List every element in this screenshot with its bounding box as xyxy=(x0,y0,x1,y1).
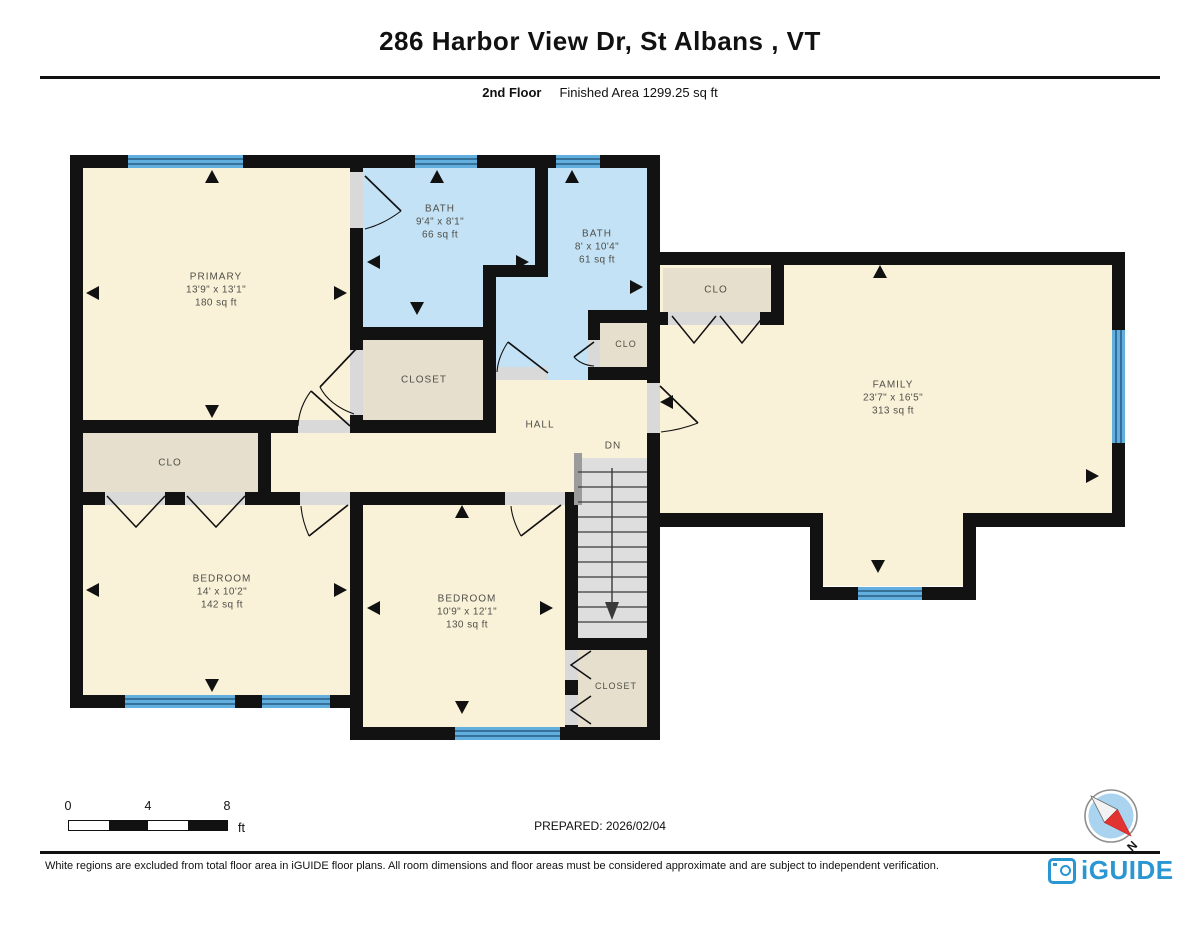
iguide-logo: iGUIDE xyxy=(1048,855,1174,886)
room-label-closet-bedroom2: CLOSET xyxy=(595,681,637,693)
room-label-bedroom-2: BEDROOM10'9" x 12'1"130 sq ft xyxy=(437,593,497,632)
stairs-down-label: DN xyxy=(605,440,621,453)
footer-divider xyxy=(40,851,1160,854)
room-label-hall: HALL xyxy=(525,419,554,432)
finished-area-label: Finished Area 1299.25 sq ft xyxy=(559,85,717,100)
room-label-bath-1: BATH9'4" x 8'1"66 sq ft xyxy=(416,203,464,242)
room-label-clo-family: CLO xyxy=(704,284,728,297)
scale-tick-4: 4 xyxy=(145,799,152,813)
room-label-bath-2: BATH8' x 10'4"61 sq ft xyxy=(575,228,619,267)
room-label-clo-left: CLO xyxy=(158,457,182,470)
iguide-logo-text: iGUIDE xyxy=(1081,855,1174,886)
scale-tick-8: 8 xyxy=(224,799,231,813)
floor-label: 2nd Floor xyxy=(482,85,541,100)
page-title: 286 Harbor View Dr, St Albans , VT xyxy=(0,26,1200,57)
room-label-bedroom-1: BEDROOM14' x 10'2"142 sq ft xyxy=(193,573,252,612)
room-label-closet-hall: CLOSET xyxy=(401,374,447,387)
scale-tick-0: 0 xyxy=(65,799,72,813)
disclaimer-text: White regions are excluded from total fl… xyxy=(45,860,1025,872)
floor-plan-page: 286 Harbor View Dr, St Albans , VT 2nd F… xyxy=(0,0,1200,927)
prepared-date: PREPARED: 2026/02/04 xyxy=(0,819,1200,833)
floor-subheader: 2nd Floor Finished Area 1299.25 sq ft xyxy=(0,85,1200,100)
room-label-primary: PRIMARY13'9" x 13'1"180 sq ft xyxy=(186,271,246,310)
iguide-camera-icon xyxy=(1048,858,1076,884)
room-label-family: FAMILY23'7" x 16'5"313 sq ft xyxy=(863,379,923,418)
room-label-clo-small: CLO xyxy=(615,339,637,351)
header-divider xyxy=(40,76,1160,79)
